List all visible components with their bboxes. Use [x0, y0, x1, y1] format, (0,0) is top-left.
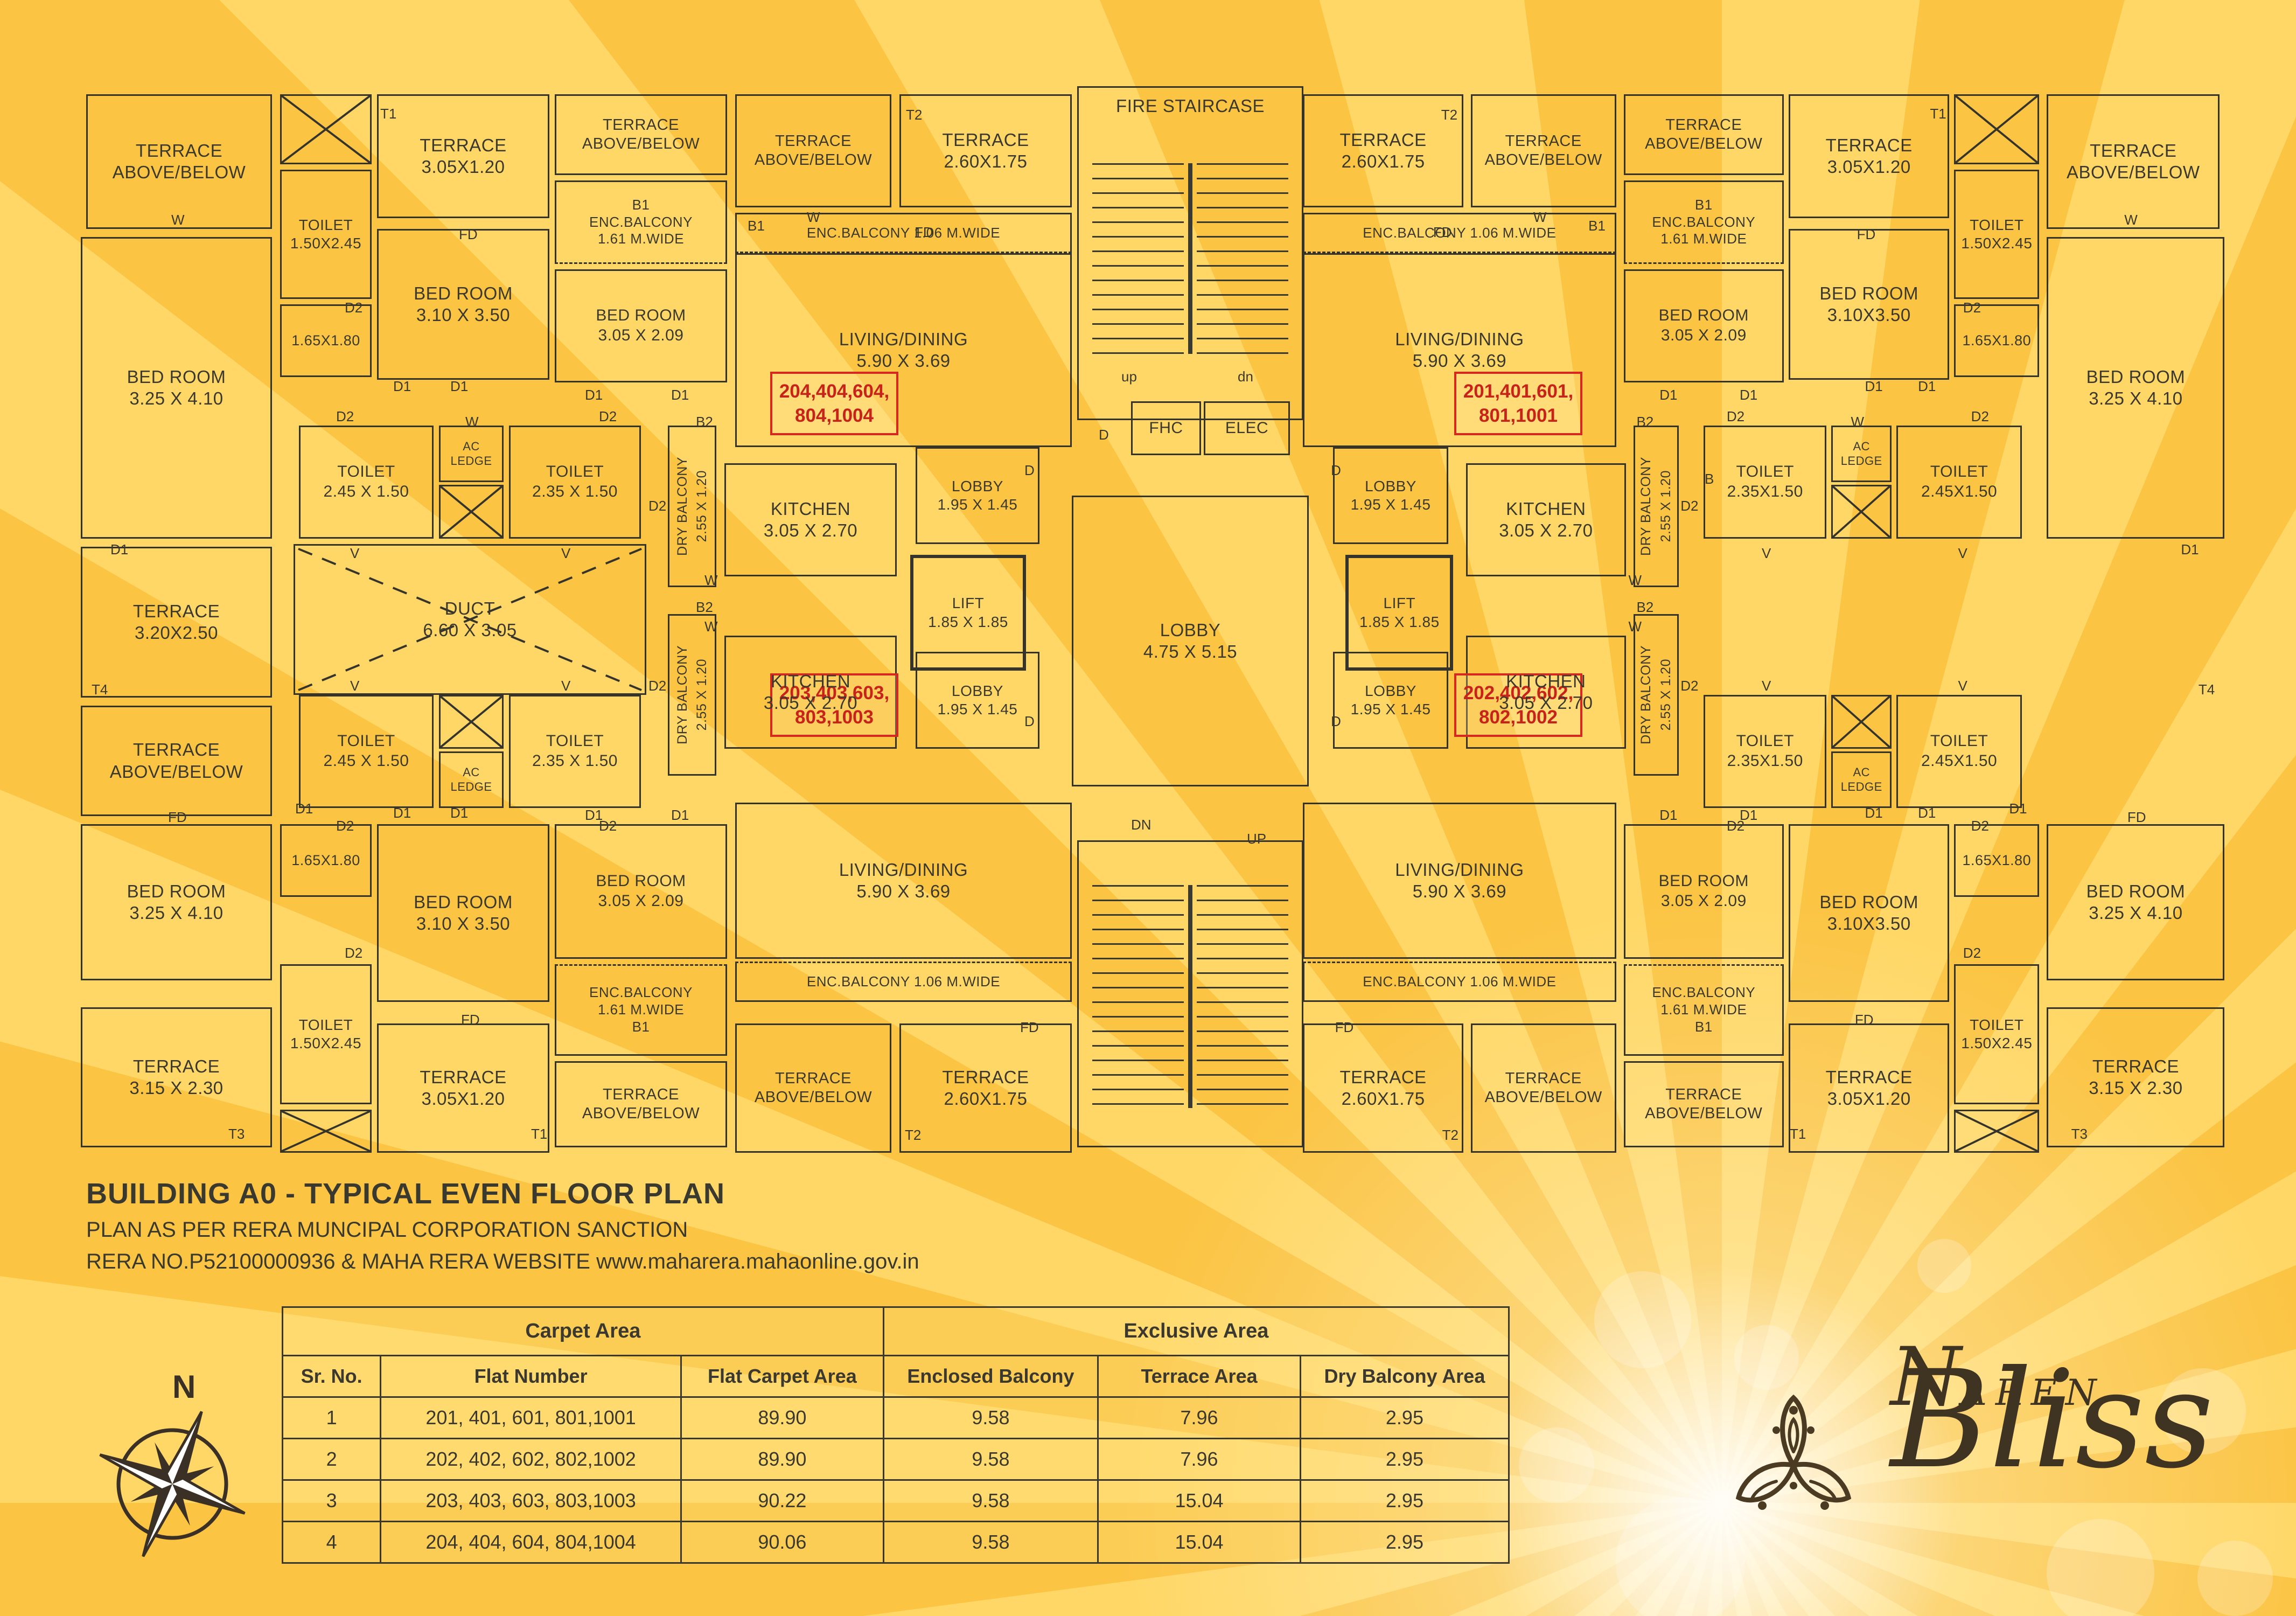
table-cell: 15.04 — [1098, 1480, 1301, 1522]
t2-terr-top-label: 2.60X1.75 — [944, 151, 1028, 172]
duct-label: DUCT — [445, 598, 496, 619]
terr-ab-b1-right-label: TERRACE — [1665, 1085, 1742, 1104]
bokeh-circle — [1594, 1271, 1691, 1368]
plan-mark-D2-right: D2 — [1963, 945, 1981, 962]
table-cell: 4 — [283, 1522, 381, 1563]
kitchen-bottom-label: 3.05 X 2.70 — [764, 692, 857, 714]
flats-204-label: 204,404,604, — [779, 379, 889, 404]
plan-mark-D2: D2 — [345, 945, 362, 962]
plan-mark-D2: D2 — [599, 408, 617, 425]
acledge-top-right-label: AC LEDGE — [1833, 440, 1890, 469]
plan-mark-D1-right: D1 — [1918, 805, 1936, 821]
plan-mark-T3: T3 — [228, 1126, 245, 1143]
terr-ab-b2-right-label: ABOVE/BELOW — [1485, 1088, 1602, 1107]
terr-ab-b2-label: ABOVE/BELOW — [755, 1088, 872, 1107]
plan-mark-T2: T2 — [906, 107, 922, 123]
living-top-right-label: LIVING/DINING — [1395, 329, 1524, 350]
plan-mark-FD-right: FD — [1335, 1019, 1354, 1036]
toilet-150-top-label: TOILET — [299, 216, 353, 234]
niche-top-label: 1.65X1.80 — [291, 332, 360, 350]
toilet-245-top-right-label: 2.45X1.50 — [1921, 482, 1997, 502]
bed-310-bottom-right-label: 3.10X3.50 — [1827, 913, 1911, 935]
plan-mark-D1: D1 — [393, 378, 411, 395]
dry-balcony-bottom-right: DRY BALCONY2.55 X 1.20 — [1634, 614, 1679, 776]
bed-305-top: BED ROOM3.05 X 2.09 — [555, 269, 727, 382]
fhc-label: FHC — [1149, 419, 1183, 438]
toilet-150-bottom-right-label: 1.50X2.45 — [1961, 1034, 2032, 1053]
enc-161-bottom-label: 1.61 M.WIDE — [598, 1001, 684, 1019]
toilet-235-bottom-label: 2.35 X 1.50 — [532, 751, 618, 771]
table-cell: 89.90 — [681, 1397, 884, 1439]
plan-mark-FD: FD — [915, 224, 933, 241]
table-cell: 2.95 — [1300, 1522, 1509, 1563]
plan-mark-B: B — [1705, 471, 1714, 487]
plan-mark-FD: FD — [168, 809, 187, 826]
dry-balcony-top: DRY BALCONY2.55 X 1.20 — [668, 426, 716, 587]
toilet-150-top-label: 1.50X2.45 — [290, 234, 361, 253]
plan-mark-D2-right: D2 — [1680, 498, 1698, 514]
table-cell: 9.58 — [883, 1439, 1098, 1480]
table-row: 4204, 404, 604, 804,100490.069.5815.042.… — [283, 1522, 1509, 1563]
plan-mark-V-right: V — [1762, 678, 1771, 694]
kitchen-bottom-right-label: 3.05 X 2.70 — [1499, 692, 1593, 714]
toilet-150-top-right-label: 1.50X2.45 — [1961, 234, 2032, 253]
table-cell: 2.95 — [1300, 1439, 1509, 1480]
t1-terr-top: TERRACE3.05X1.20 — [377, 94, 549, 218]
plan-mark-D1: D1 — [671, 387, 689, 403]
living-bottom-label: LIVING/DINING — [839, 859, 968, 881]
kitchen-top-right-label: KITCHEN — [1506, 498, 1586, 520]
plan-mark-D1: D1 — [585, 387, 603, 403]
plan-mark-T1-right: T1 — [1790, 1126, 1806, 1143]
terr-ab-2-top-label: TERRACE — [603, 116, 679, 135]
bed-325-bottom: BED ROOM3.25 X 4.10 — [81, 824, 272, 980]
terr-ab-3-top-right-label: ABOVE/BELOW — [1485, 151, 1602, 170]
enc-161-bottom-right-label: B1 — [1695, 1019, 1713, 1036]
lobby-bottom-label: 1.95 X 1.45 — [938, 700, 1018, 719]
toilet-235-top-right-label: TOILET — [1736, 462, 1793, 482]
enc-161-bottom-right-label: 1.61 M.WIDE — [1660, 1001, 1747, 1019]
column-header-flat-number: Flat Number — [381, 1356, 681, 1397]
terr-315-label: TERRACE — [133, 1056, 220, 1077]
flats-204-label: 804,1004 — [795, 403, 874, 428]
bed-310-bottom-label: BED ROOM — [414, 891, 513, 913]
toilet-245-bottom-label: TOILET — [337, 732, 395, 751]
plan-mark-T2-right: T2 — [1441, 107, 1457, 123]
terr-ab-b2-right-label: TERRACE — [1505, 1069, 1582, 1088]
fhc: FHC — [1131, 401, 1201, 455]
plan-mark-FD: FD — [461, 1012, 480, 1028]
table-cell: 9.58 — [883, 1397, 1098, 1439]
bed-325-top-label: 3.25 X 4.10 — [129, 388, 223, 409]
terr-ab-b1: TERRACEABOVE/BELOW — [555, 1061, 727, 1147]
bed-310-bottom-right: BED ROOM3.10X3.50 — [1789, 824, 1949, 1002]
plan-mark-W: W — [465, 414, 479, 430]
enc-161-top: B1ENC.BALCONY1.61 M.WIDE — [555, 180, 727, 264]
table-cell: 203, 403, 603, 803,1003 — [381, 1480, 681, 1522]
plan-mark-T3-right: T3 — [2071, 1126, 2088, 1143]
plan-mark-D2: D2 — [345, 299, 362, 316]
column-header-enclosed-balcony: Enclosed Balcony — [883, 1356, 1098, 1397]
plan-mark-up: up — [1121, 368, 1137, 385]
plan-mark-D1: D1 — [393, 805, 411, 821]
terr-ab-mid-left-label: TERRACE — [133, 739, 220, 761]
dry-balcony-top-right-label: 2.55 X 1.20 — [1658, 470, 1674, 542]
acledge-bottom: AC LEDGE — [439, 751, 504, 808]
plan-mark-V: V — [561, 545, 570, 562]
plan-mark-B2: B2 — [696, 599, 713, 616]
bokeh-circle — [1519, 1427, 1594, 1503]
plan-mark-D2-right: D2 — [1971, 818, 1989, 834]
plan-mark-W: W — [704, 618, 718, 635]
table-cell: 2.95 — [1300, 1480, 1509, 1522]
main-lobby-label: LOBBY — [1160, 619, 1221, 641]
dry-balcony-bottom-label: 2.55 X 1.20 — [694, 659, 710, 730]
bed-305-top-right-label: 3.05 X 2.09 — [1661, 326, 1747, 346]
floor-plan-page: TERRACEABOVE/BELOWTERRACEABOVE/BELOWBED … — [0, 0, 2296, 1616]
plan-mark-D: D — [1024, 713, 1035, 730]
plan-mark-D2-right: D2 — [1680, 678, 1698, 694]
bed-305-top-right: BED ROOM3.05 X 2.09 — [1624, 269, 1784, 382]
t2-terr-top-right-label: 2.60X1.75 — [1342, 151, 1425, 172]
living-bottom-right-label: 5.90 X 3.69 — [1413, 881, 1506, 902]
plan-mark-W-right: W — [2124, 212, 2138, 228]
terr-ab-mid-left-label: ABOVE/BELOW — [110, 761, 243, 783]
table-cell: 1 — [283, 1397, 381, 1439]
group-header-carpet-area: Carpet Area — [283, 1307, 884, 1356]
dry-balcony-bottom-right-label: 2.55 X 1.20 — [1658, 659, 1674, 730]
terr-ab-b2: TERRACEABOVE/BELOW — [735, 1023, 891, 1153]
toilet-235-top-label: TOILET — [546, 462, 604, 482]
plan-mark-W: W — [704, 572, 718, 589]
toilet-235-bottom-right: TOILET2.35X1.50 — [1704, 695, 1826, 808]
table-cell: 202, 402, 602, 802,1002 — [381, 1439, 681, 1480]
t2-terr-bottom-right-label: TERRACE — [1340, 1067, 1427, 1088]
plan-mark-D1: D1 — [671, 807, 689, 824]
terr-ab-top-left: TERRACEABOVE/BELOW — [86, 94, 272, 229]
terr-ab-top-left-label: ABOVE/BELOW — [113, 162, 246, 183]
plan-mark-D2: D2 — [336, 818, 354, 834]
table-cell: 201, 401, 601, 801,1001 — [381, 1397, 681, 1439]
stair-flight — [1197, 163, 1288, 354]
living-bottom-right: LIVING/DINING5.90 X 3.69 — [1303, 803, 1616, 959]
living-bottom: LIVING/DINING5.90 X 3.69 — [735, 803, 1072, 959]
toilet-245-bottom-right: TOILET2.45X1.50 — [1896, 695, 2022, 808]
kitchen-top-label: 3.05 X 2.70 — [764, 520, 857, 541]
terr-ab-2-top-right-label: ABOVE/BELOW — [1645, 135, 1762, 154]
stair-rail — [1188, 163, 1192, 354]
bed-305-bottom-right: BED ROOM3.05 X 2.09 — [1624, 824, 1784, 959]
plan-mark-D1-right: D1 — [1865, 805, 1883, 821]
enc-106-top-right-label: ENC.BALCONY 1.06 M.WIDE — [1363, 225, 1556, 242]
area-table: Carpet Area Exclusive Area Sr. No.Flat N… — [282, 1306, 1510, 1564]
living-top-right-label: 5.90 X 3.69 — [1413, 350, 1506, 372]
t1-terr-top-label: TERRACE — [420, 135, 506, 156]
terr-315-right-label: TERRACE — [2092, 1056, 2179, 1077]
plan-mark-D1: D1 — [295, 800, 313, 817]
living-top-label: LIVING/DINING — [839, 329, 968, 350]
lobby-top-right-label: 1.95 X 1.45 — [1351, 496, 1431, 514]
plan-mark-B1: B1 — [748, 218, 765, 234]
kitchen-top-label: KITCHEN — [771, 498, 850, 520]
enc-106-bottom-right: ENC.BALCONY 1.06 M.WIDE — [1303, 962, 1616, 1002]
acledge-top-label: AC LEDGE — [441, 440, 502, 469]
terr-ab-top-left-right-label: ABOVE/BELOW — [2067, 162, 2200, 183]
plan-mark-T2-right: T2 — [1442, 1127, 1458, 1144]
lobby-top: LOBBY1.95 X 1.45 — [916, 447, 1039, 544]
enc-106-top: ENC.BALCONY 1.06 M.WIDE — [735, 213, 1072, 253]
brand-logo: NAREN Bliss — [1713, 1282, 2278, 1605]
toilet-245-bottom-right-label: 2.45X1.50 — [1921, 751, 1997, 771]
plan-mark-D2: D2 — [336, 408, 354, 425]
stair-rail — [1188, 885, 1192, 1108]
t1-terr-bottom-label: 3.05X1.20 — [422, 1088, 505, 1110]
t1-terr-bottom: TERRACE3.05X1.20 — [377, 1023, 549, 1153]
t2-terr-bottom-right-label: 2.60X1.75 — [1342, 1088, 1425, 1110]
bottom-staircase — [1077, 840, 1303, 1147]
kitchen-bottom-right-label: KITCHEN — [1506, 671, 1586, 692]
plan-mark-D1-right: D1 — [1659, 387, 1677, 403]
dry-balcony-top-label: DRY BALCONY — [674, 457, 691, 556]
acledge-bottom-right-label: AC LEDGE — [1833, 765, 1890, 795]
column-header-sr-no-: Sr. No. — [283, 1356, 381, 1397]
terr-ab-3-top-label: TERRACE — [775, 132, 852, 151]
toilet-245-bottom-label: 2.45 X 1.50 — [324, 751, 409, 771]
toilet-235-top: TOILET2.35 X 1.50 — [509, 426, 641, 539]
plan-mark-D2: D2 — [648, 498, 666, 514]
kitchen-top-right-label: 3.05 X 2.70 — [1499, 520, 1593, 541]
plan-mark-FD-right: FD — [1855, 1012, 1874, 1028]
toilet-235-bottom: TOILET2.35 X 1.50 — [509, 695, 641, 808]
table-cell: 2.95 — [1300, 1397, 1509, 1439]
bed-305-top-label: 3.05 X 2.09 — [598, 326, 684, 346]
toilet-150-top: TOILET1.50X2.45 — [280, 170, 372, 299]
bed-325-bottom-right: BED ROOM3.25 X 4.10 — [2047, 824, 2224, 980]
plan-mark-T1: T1 — [531, 1126, 547, 1143]
plan-mark-D1: D1 — [110, 541, 128, 558]
plan-mark-V-right: V — [1958, 678, 1967, 694]
lobby-top-label: LOBBY — [952, 477, 1003, 496]
dry-balcony-bottom-right-label: DRY BALCONY — [1638, 645, 1655, 744]
plan-mark-FD-right: FD — [1433, 224, 1452, 241]
bed-310-bottom: BED ROOM3.10 X 3.50 — [377, 824, 549, 1002]
terr-ab-mid-left: TERRACEABOVE/BELOW — [81, 706, 272, 816]
stair-flight — [1197, 885, 1288, 1108]
plan-mark-V: V — [350, 545, 359, 562]
table-cell: 89.90 — [681, 1439, 884, 1480]
plan-mark-B2-right: B2 — [1636, 599, 1653, 616]
bed-310-top-label: BED ROOM — [414, 283, 513, 304]
acledge-top: AC LEDGE — [439, 426, 504, 482]
shaft-mid-top — [439, 485, 504, 539]
living-bottom-right-label: LIVING/DINING — [1395, 859, 1524, 881]
toilet-150-bottom-label: TOILET — [299, 1016, 353, 1034]
plan-subtitle-rera: RERA NO.P52100000936 & MAHA RERA WEBSITE… — [86, 1250, 919, 1274]
toilet-245-bottom-right-label: TOILET — [1930, 732, 1988, 751]
plan-mark-B2: B2 — [696, 414, 713, 430]
plan-mark-T1-right: T1 — [1930, 106, 1946, 122]
title-block: BUILDING A0 - TYPICAL EVEN FLOOR PLAN PL… — [86, 1177, 919, 1274]
plan-mark-T1: T1 — [380, 106, 396, 122]
bed-310-bottom-right-label: BED ROOM — [1819, 891, 1918, 913]
bed-305-top-label: BED ROOM — [596, 306, 686, 326]
toilet-235-bottom-right-label: TOILET — [1736, 732, 1793, 751]
bed-325-top-right: BED ROOM3.25 X 4.10 — [2047, 237, 2224, 539]
t2-terr-top-right-label: TERRACE — [1340, 129, 1427, 151]
dry-balcony-top-right: DRY BALCONY2.55 X 1.20 — [1634, 426, 1679, 587]
toilet-245-top-right-label: TOILET — [1930, 462, 1988, 482]
lobby-bottom: LOBBY1.95 X 1.45 — [916, 652, 1039, 749]
elec-label: ELEC — [1225, 419, 1268, 438]
lobby-top-right: LOBBY1.95 X 1.45 — [1333, 447, 1448, 544]
terr-ab-b1-right: TERRACEABOVE/BELOW — [1624, 1061, 1784, 1147]
bed-325-bottom-label: BED ROOM — [127, 881, 226, 902]
terr-ab-2-top: TERRACEABOVE/BELOW — [555, 94, 727, 175]
plan-mark-V-right: V — [1762, 545, 1771, 562]
plan-mark-D-right: D — [1331, 713, 1341, 730]
kitchen-top: KITCHEN3.05 X 2.70 — [724, 463, 897, 576]
plan-mark-D1: D1 — [450, 378, 468, 395]
plan-mark-D1: D1 — [450, 805, 468, 821]
niche-bottom-right-label: 1.65X1.80 — [1963, 852, 2032, 869]
lobby-top-right-label: LOBBY — [1365, 477, 1416, 496]
plan-mark-W: W — [171, 212, 185, 228]
enc-161-top-right: B1ENC.BALCONY1.61 M.WIDE — [1624, 180, 1784, 264]
flats-201-label: 201,401,601, — [1463, 379, 1573, 404]
bed-310-top-label: 3.10 X 3.50 — [416, 304, 510, 326]
bed-325-bottom-right-label: BED ROOM — [2086, 881, 2186, 902]
toilet-150-bottom-right-label: TOILET — [1970, 1016, 2024, 1034]
compass-rose: N — [97, 1368, 259, 1573]
acledge-top-right: AC LEDGE — [1831, 426, 1892, 482]
bed-325-top: BED ROOM3.25 X 4.10 — [81, 237, 272, 539]
plan-mark-D2: D2 — [648, 678, 666, 694]
fire-staircase: FIRE STAIRCASE — [1077, 86, 1303, 420]
toilet-245-top-right: TOILET2.45X1.50 — [1896, 426, 2022, 539]
table-row: 3203, 403, 603, 803,100390.229.5815.042.… — [283, 1480, 1509, 1522]
acledge-bottom-right: AC LEDGE — [1831, 751, 1892, 808]
column-header-flat-carpet-area: Flat Carpet Area — [681, 1356, 884, 1397]
plan-mark-D1-right: D1 — [1865, 378, 1883, 395]
toilet-235-bottom-label: TOILET — [546, 732, 604, 751]
compass-north-label: N — [172, 1368, 196, 1405]
t2-terr-bottom-right: TERRACE2.60X1.75 — [1303, 1023, 1463, 1153]
t2-terr-top-label: TERRACE — [942, 129, 1029, 151]
lobby-bottom-right: LOBBY1.95 X 1.45 — [1333, 652, 1448, 749]
table-row: 2202, 402, 602, 802,100289.909.587.962.9… — [283, 1439, 1509, 1480]
toilet-235-top-label: 2.35 X 1.50 — [532, 482, 618, 502]
terr-ab-2-top-label: ABOVE/BELOW — [582, 135, 700, 154]
enc-161-bottom-right: ENC.BALCONY1.61 M.WIDEB1 — [1624, 964, 1784, 1056]
t1-terr-top-right-label: TERRACE — [1826, 135, 1913, 156]
terr-320-label: TERRACE — [133, 601, 220, 622]
shaft-bottom — [280, 1110, 372, 1153]
enc-161-bottom-label: B1 — [632, 1019, 650, 1036]
terr-ab-3-top-right-label: TERRACE — [1505, 132, 1582, 151]
living-bottom-label: 5.90 X 3.69 — [856, 881, 950, 902]
shaft-top — [280, 94, 372, 164]
terr-ab-b1-label: TERRACE — [603, 1085, 679, 1104]
terr-ab-b2-right: TERRACEABOVE/BELOW — [1471, 1023, 1616, 1153]
plan-title: BUILDING A0 - TYPICAL EVEN FLOOR PLAN — [86, 1177, 919, 1210]
plan-mark-D2-right: D2 — [1963, 299, 1981, 316]
plan-mark-D1: D1 — [585, 807, 603, 824]
bed-305-bottom-label: 3.05 X 2.09 — [598, 891, 684, 911]
toilet-245-top-label: 2.45 X 1.50 — [324, 482, 409, 502]
lift-label: LIFT — [952, 594, 985, 612]
plan-mark-D2-right: D2 — [1727, 408, 1744, 425]
table-header-row: Sr. No.Flat NumberFlat Carpet AreaEnclos… — [283, 1356, 1509, 1397]
enc-106-top-label: ENC.BALCONY 1.06 M.WIDE — [807, 225, 1000, 242]
plan-subtitle-sanction: PLAN AS PER RERA MUNCIPAL CORPORATION SA… — [86, 1218, 919, 1242]
plan-mark-D1-right: D1 — [2009, 800, 2027, 817]
group-header-exclusive-area: Exclusive Area — [883, 1307, 1509, 1356]
toilet-150-bottom-right: TOILET1.50X2.45 — [1954, 964, 2039, 1104]
t1-terr-bottom-right: TERRACE3.05X1.20 — [1789, 1023, 1949, 1153]
plan-mark-DN: DN — [1131, 817, 1152, 833]
plan-mark-D1-right: D1 — [1659, 807, 1677, 824]
lobby-bottom-right-label: 1.95 X 1.45 — [1351, 700, 1431, 719]
table-body: 1201, 401, 601, 801,100189.909.587.962.9… — [283, 1397, 1509, 1563]
toilet-150-top-right: TOILET1.50X2.45 — [1954, 170, 2039, 299]
enc-161-bottom-right-label: ENC.BALCONY — [1652, 984, 1755, 1001]
shaft-mid-bottom-right — [1831, 695, 1892, 749]
plan-mark-B1-right: B1 — [1588, 218, 1606, 234]
enc-161-bottom: ENC.BALCONY1.61 M.WIDEB1 — [555, 964, 727, 1056]
plan-mark-T2: T2 — [905, 1127, 921, 1144]
plan-mark-UP: UP — [1247, 831, 1266, 847]
brand-name-bliss: Bliss — [1890, 1341, 2214, 1498]
bed-305-bottom: BED ROOM3.05 X 2.09 — [555, 824, 727, 959]
plan-mark-D1-right: D1 — [1740, 387, 1757, 403]
table-cell: 15.04 — [1098, 1522, 1301, 1563]
plan-mark-FD: FD — [459, 226, 478, 243]
living-top-label: 5.90 X 3.69 — [856, 350, 950, 372]
niche-bottom: 1.65X1.80 — [280, 824, 372, 897]
t2-terr-bottom-label: 2.60X1.75 — [944, 1088, 1028, 1110]
plan-mark-D1-right: D1 — [1918, 378, 1936, 395]
t2-terr-top: TERRACE2.60X1.75 — [899, 94, 1072, 207]
plan-mark-V-right: V — [1958, 545, 1967, 562]
enc-161-top-right-label: 1.61 M.WIDE — [1660, 231, 1747, 248]
terr-315-label: 3.15 X 2.30 — [129, 1077, 223, 1099]
t1-terr-top-right: TERRACE3.05X1.20 — [1789, 94, 1949, 218]
plan-mark-FD: FD — [1020, 1019, 1039, 1036]
table-group-header-row: Carpet Area Exclusive Area — [283, 1307, 1509, 1356]
plan-mark-W: W — [807, 209, 820, 226]
table-cell: 7.96 — [1098, 1439, 1301, 1480]
lift-label: 1.85 X 1.85 — [928, 613, 1008, 631]
terr-ab-b1-right-label: ABOVE/BELOW — [1645, 1104, 1762, 1123]
table-cell: 3 — [283, 1480, 381, 1522]
enc-106-bottom-label: ENC.BALCONY 1.06 M.WIDE — [807, 973, 1000, 991]
terr-ab-b1-label: ABOVE/BELOW — [582, 1104, 700, 1123]
enc-161-top-label: 1.61 M.WIDE — [598, 231, 684, 248]
enc-161-top-label: B1 — [632, 197, 650, 214]
trefoil-ornament-icon — [1713, 1379, 1874, 1541]
plan-mark-V: V — [350, 678, 359, 694]
plan-mark-W-right: W — [1851, 414, 1864, 430]
terr-ab-top-left-label: TERRACE — [136, 140, 222, 162]
toilet-235-top-right-label: 2.35X1.50 — [1727, 482, 1803, 502]
toilet-245-top: TOILET2.45 X 1.50 — [299, 426, 434, 539]
bed-305-bottom-right-label: BED ROOM — [1659, 872, 1749, 891]
terr-ab-2-top-right-label: TERRACE — [1665, 116, 1742, 135]
plan-mark-V: V — [561, 678, 570, 694]
flats-201: 201,401,601,801,1001 — [1454, 372, 1582, 435]
t1-terr-top-right-label: 3.05X1.20 — [1827, 156, 1911, 178]
stair-flight — [1092, 885, 1184, 1108]
